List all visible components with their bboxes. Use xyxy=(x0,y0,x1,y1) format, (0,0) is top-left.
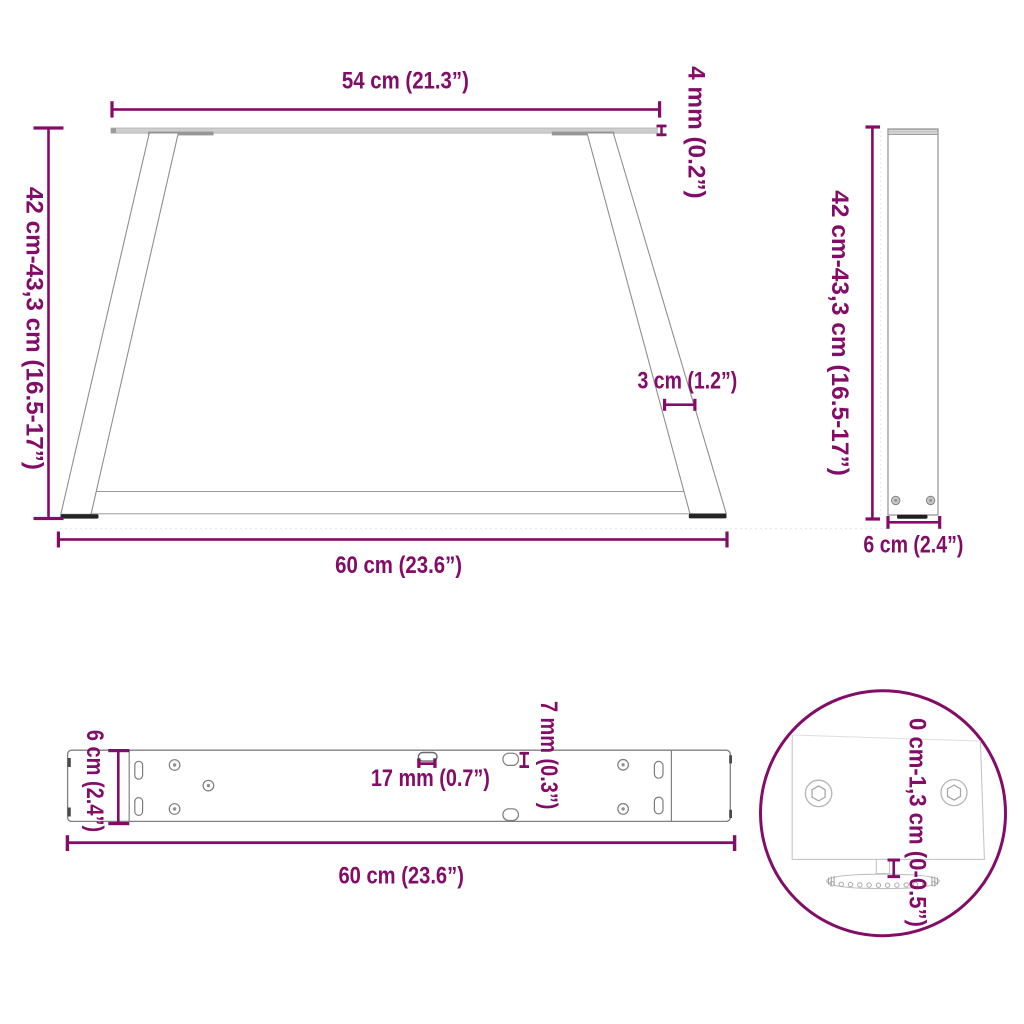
svg-text:3 cm (1.2”): 3 cm (1.2”) xyxy=(638,368,738,395)
svg-text:7 mm (0.3”): 7 mm (0.3”) xyxy=(535,701,562,810)
svg-text:6 cm (2.4”): 6 cm (2.4”) xyxy=(863,532,963,559)
svg-text:4 mm (0.2”): 4 mm (0.2”) xyxy=(682,66,709,199)
svg-text:54 cm (21.3”): 54 cm (21.3”) xyxy=(342,68,469,95)
svg-text:0 cm-1,3 cm (0-0.5”): 0 cm-1,3 cm (0-0.5”) xyxy=(903,718,930,927)
svg-text:60 cm (23.6”): 60 cm (23.6”) xyxy=(335,552,462,579)
svg-text:60 cm (23.6”): 60 cm (23.6”) xyxy=(338,863,464,890)
svg-text:17 mm (0.7”): 17 mm (0.7”) xyxy=(371,765,490,792)
svg-text:42 cm-43,3 cm (16.5-17”): 42 cm-43,3 cm (16.5-17”) xyxy=(21,187,48,470)
svg-text:6 cm (2.4”): 6 cm (2.4”) xyxy=(81,730,108,832)
svg-text:42 cm-43,3 cm (16.5-17”): 42 cm-43,3 cm (16.5-17”) xyxy=(826,190,853,476)
